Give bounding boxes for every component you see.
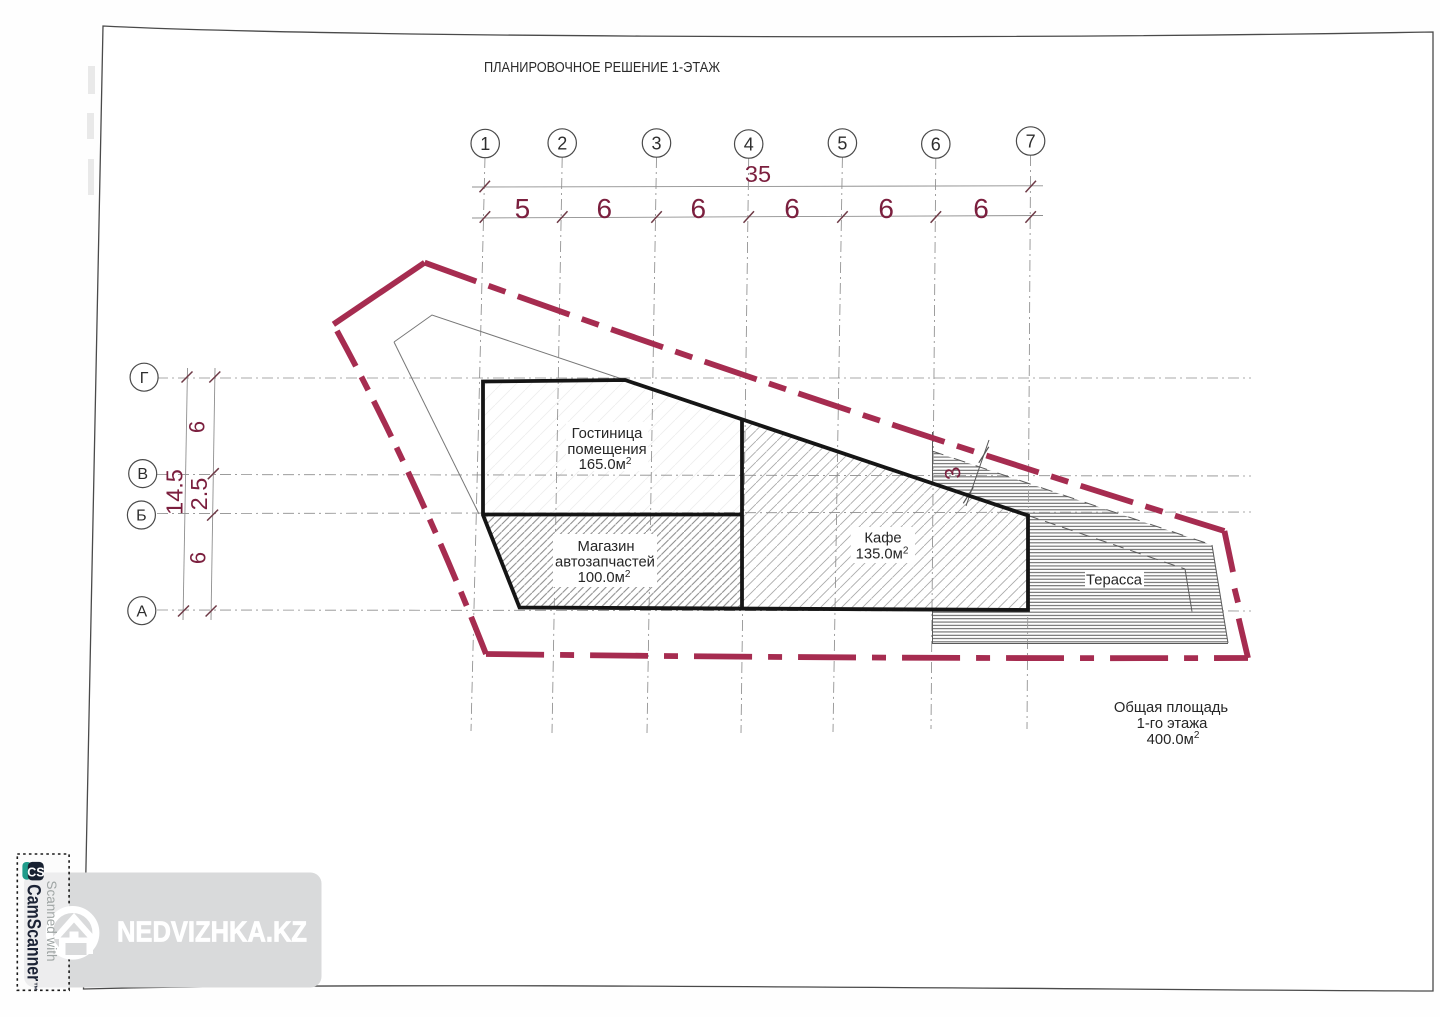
svg-text:7: 7 (1026, 131, 1036, 151)
svg-text:CS: CS (27, 866, 44, 880)
svg-text:В: В (137, 466, 148, 483)
svg-text:100.0м2: 100.0м2 (578, 569, 631, 586)
svg-text:4: 4 (744, 134, 754, 154)
svg-text:135.0м2: 135.0м2 (856, 546, 909, 563)
svg-text:400.0м2: 400.0м2 (1147, 730, 1200, 748)
svg-text:А: А (136, 603, 147, 620)
svg-text:6: 6 (878, 193, 894, 224)
svg-text:5: 5 (837, 133, 847, 153)
svg-text:автозапчастей: автозапчастей (555, 555, 655, 571)
svg-text:Г: Г (140, 370, 149, 387)
svg-text:2: 2 (557, 133, 567, 153)
svg-text:помещения: помещения (567, 442, 646, 458)
svg-text:Кафе: Кафе (864, 531, 901, 547)
svg-text:2.5: 2.5 (186, 478, 212, 511)
svg-text:Гостиница: Гостиница (572, 426, 644, 442)
svg-text:1: 1 (480, 134, 490, 154)
svg-text:165.0м2: 165.0м2 (579, 456, 632, 473)
svg-text:NEDVIZHKA.KZ: NEDVIZHKA.KZ (117, 917, 307, 949)
svg-text:6: 6 (973, 193, 989, 224)
svg-text:3: 3 (651, 133, 661, 153)
svg-text:Магазин: Магазин (577, 539, 634, 555)
svg-text:Терасса: Терасса (1086, 573, 1143, 589)
svg-text:6: 6 (784, 193, 800, 224)
svg-text:CamScanner: CamScanner (22, 884, 43, 981)
svg-text:6: 6 (185, 421, 210, 433)
svg-text:14.5: 14.5 (162, 469, 188, 515)
svg-text:Scanned with: Scanned with (44, 881, 59, 962)
svg-text:6: 6 (931, 134, 941, 154)
svg-text:6: 6 (597, 193, 613, 224)
svg-text:Общая площадь: Общая площадь (1114, 700, 1229, 716)
svg-text:5: 5 (515, 193, 531, 224)
svg-text:35: 35 (745, 161, 771, 187)
svg-text:™: ™ (29, 982, 39, 991)
svg-text:6: 6 (691, 193, 707, 224)
svg-text:Б: Б (136, 508, 147, 525)
svg-text:ПЛАНИРОВОЧНОЕ РЕШЕНИЕ 1-ЭТАЖ: ПЛАНИРОВОЧНОЕ РЕШЕНИЕ 1-ЭТАЖ (484, 59, 720, 76)
svg-text:6: 6 (186, 552, 211, 564)
